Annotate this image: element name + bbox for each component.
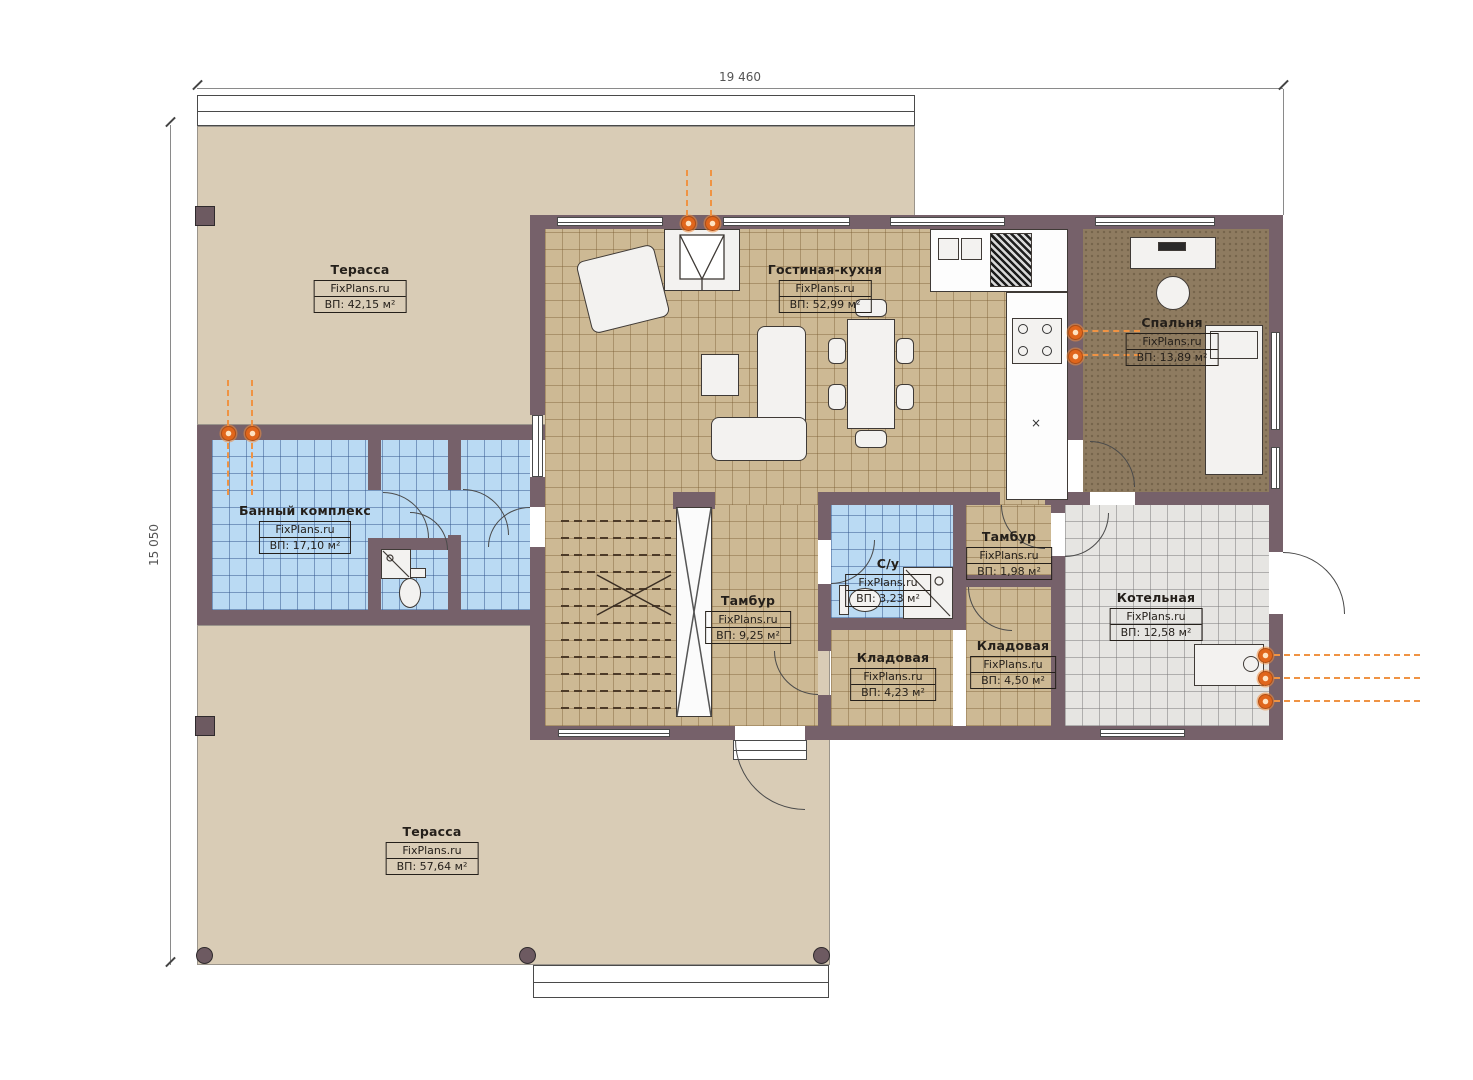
room-info-box: FixPlans.ru ВП: 9,25 м² bbox=[705, 611, 791, 644]
area-row: ВП: 12,58 м² bbox=[1111, 624, 1202, 640]
wall-lamp bbox=[221, 426, 236, 441]
shower-detail bbox=[381, 549, 411, 579]
wall bbox=[1135, 492, 1283, 505]
coffee-table bbox=[701, 354, 739, 396]
lamp-leader bbox=[1274, 700, 1420, 702]
room-name: Тамбур bbox=[705, 593, 791, 608]
room-label-vestibule-main: Тамбур FixPlans.ru ВП: 9,25 м² bbox=[705, 593, 791, 644]
chair bbox=[828, 384, 846, 410]
round-column bbox=[196, 947, 213, 964]
boiler-dial bbox=[1243, 656, 1259, 672]
wall bbox=[818, 695, 831, 740]
fireplace-detail bbox=[664, 229, 740, 291]
room-info-box: FixPlans.ru ВП: 57,64 м² bbox=[386, 842, 479, 875]
round-column bbox=[519, 947, 536, 964]
toilet bbox=[399, 578, 421, 608]
brand-row: FixPlans.ru bbox=[1127, 334, 1218, 349]
chair bbox=[828, 338, 846, 364]
terrace-steps-top bbox=[197, 95, 915, 126]
brand-row: FixPlans.ru bbox=[706, 612, 790, 627]
area-row: ВП: 1,98 м² bbox=[967, 563, 1051, 579]
wall bbox=[530, 477, 545, 507]
chair bbox=[896, 338, 914, 364]
area-row: ВП: 52,99 м² bbox=[780, 296, 871, 312]
room-name: Терасса bbox=[314, 262, 407, 277]
area-row: ВП: 4,23 м² bbox=[851, 684, 935, 700]
room-info-box: FixPlans.ru ВП: 3,23 м² bbox=[845, 574, 931, 607]
room-label-bath: Банный комплекс FixPlans.ru ВП: 17,10 м² bbox=[239, 503, 371, 554]
stove-burner bbox=[1018, 346, 1028, 356]
dining-table bbox=[847, 319, 895, 429]
room-label-terrace-top: Терасса FixPlans.ru ВП: 42,15 м² bbox=[314, 262, 407, 313]
room-label-terrace-bottom: Терасса FixPlans.ru ВП: 57,64 м² bbox=[386, 824, 479, 875]
door-opening bbox=[735, 726, 805, 740]
lamp-leader bbox=[227, 443, 229, 495]
window bbox=[557, 217, 663, 226]
stove-burner bbox=[1042, 346, 1052, 356]
kitchen-sink bbox=[961, 238, 982, 260]
brand-row: FixPlans.ru bbox=[971, 657, 1055, 672]
wall bbox=[197, 425, 212, 625]
wall bbox=[818, 584, 831, 651]
dimension-line-left bbox=[170, 125, 171, 965]
chair bbox=[896, 384, 914, 410]
room-name: С/у bbox=[845, 556, 931, 571]
sofa-seat bbox=[711, 417, 807, 461]
window bbox=[1100, 729, 1185, 737]
room-name: Банный комплекс bbox=[239, 503, 371, 518]
room-name: Гостиная-кухня bbox=[768, 262, 882, 277]
lamp-leader bbox=[686, 170, 688, 216]
brand-row: FixPlans.ru bbox=[315, 281, 406, 296]
room-info-box: FixPlans.ru ВП: 42,15 м² bbox=[314, 280, 407, 313]
stove-burner bbox=[1042, 324, 1052, 334]
window bbox=[1095, 217, 1215, 226]
stove-burner bbox=[1018, 324, 1028, 334]
wall bbox=[368, 440, 381, 490]
area-row: ВП: 42,15 м² bbox=[315, 296, 406, 312]
window bbox=[558, 729, 670, 737]
wall bbox=[818, 492, 1000, 505]
brand-row: FixPlans.ru bbox=[1111, 609, 1202, 624]
terrace-steps-bottom bbox=[533, 965, 829, 998]
room-info-box: FixPlans.ru ВП: 4,50 м² bbox=[970, 656, 1056, 689]
room-label-boiler: Котельная FixPlans.ru ВП: 12,58 м² bbox=[1110, 590, 1203, 641]
square-column bbox=[195, 716, 215, 736]
room-info-box: FixPlans.ru ВП: 17,10 м² bbox=[259, 521, 352, 554]
door-opening bbox=[1269, 552, 1283, 614]
room-name: Терасса bbox=[386, 824, 479, 839]
window bbox=[723, 217, 850, 226]
lamp-leader bbox=[710, 170, 712, 216]
room-info-box: FixPlans.ru ВП: 4,23 м² bbox=[850, 668, 936, 701]
area-row: ВП: 13,89 м² bbox=[1127, 349, 1218, 365]
area-row: ВП: 4,50 м² bbox=[971, 672, 1055, 688]
wall bbox=[831, 618, 966, 630]
window bbox=[532, 415, 543, 477]
room-label-storage-a: Кладовая FixPlans.ru ВП: 4,23 м² bbox=[850, 650, 936, 701]
wall bbox=[448, 440, 461, 490]
room-name: Кладовая bbox=[970, 638, 1056, 653]
brand-row: FixPlans.ru bbox=[260, 522, 351, 537]
chair bbox=[855, 430, 887, 448]
stairs bbox=[557, 505, 675, 715]
brand-row: FixPlans.ru bbox=[851, 669, 935, 684]
square-column bbox=[195, 206, 215, 226]
room-name: Котельная bbox=[1110, 590, 1203, 605]
wall bbox=[818, 505, 831, 540]
room-info-box: FixPlans.ru ВП: 52,99 м² bbox=[779, 280, 872, 313]
area-row: ВП: 17,10 м² bbox=[260, 537, 351, 553]
lamp-leader bbox=[251, 380, 253, 426]
vent-mark: × bbox=[1031, 416, 1041, 430]
wall bbox=[953, 505, 966, 625]
lamp-leader bbox=[227, 380, 229, 426]
brand-row: FixPlans.ru bbox=[387, 843, 478, 858]
wall-lamp bbox=[1258, 648, 1273, 663]
room-info-box: FixPlans.ru ВП: 13,89 м² bbox=[1126, 333, 1219, 366]
wall-lamp bbox=[1258, 671, 1273, 686]
wall-lamp bbox=[245, 426, 260, 441]
window bbox=[1271, 447, 1280, 489]
area-row: ВП: 57,64 м² bbox=[387, 858, 478, 874]
room-name: Тамбур bbox=[966, 529, 1052, 544]
room-label-living: Гостиная-кухня FixPlans.ru ВП: 52,99 м² bbox=[768, 262, 882, 313]
lamp-leader bbox=[1274, 677, 1420, 679]
area-row: ВП: 3,23 м² bbox=[846, 590, 930, 606]
dimension-label-top: 19 460 bbox=[705, 70, 775, 84]
lamp-leader bbox=[251, 443, 253, 495]
floor-plan: 19 460 15 050 bbox=[0, 0, 1473, 1080]
room-label-wc: С/у FixPlans.ru ВП: 3,23 м² bbox=[845, 556, 931, 607]
desk-chair bbox=[1156, 276, 1190, 310]
dimension-line-top bbox=[197, 88, 1283, 89]
wall bbox=[530, 215, 545, 415]
wall bbox=[197, 610, 545, 625]
door-arc bbox=[1283, 552, 1345, 614]
fridge bbox=[990, 233, 1032, 287]
brand-row: FixPlans.ru bbox=[780, 281, 871, 296]
area-row: ВП: 9,25 м² bbox=[706, 627, 790, 643]
brand-row: FixPlans.ru bbox=[967, 548, 1051, 563]
dimension-extension-line bbox=[1283, 89, 1284, 215]
room-name: Кладовая bbox=[850, 650, 936, 665]
kitchen-sink bbox=[938, 238, 959, 260]
dimension-label-left: 15 050 bbox=[147, 513, 161, 577]
wall bbox=[530, 547, 545, 740]
wall-lamp bbox=[705, 216, 720, 231]
window bbox=[1271, 332, 1280, 430]
monitor bbox=[1158, 242, 1186, 251]
wall-lamp bbox=[1068, 325, 1083, 340]
window bbox=[890, 217, 1005, 226]
room-name: Спальня bbox=[1126, 315, 1219, 330]
room-label-bedroom: Спальня FixPlans.ru ВП: 13,89 м² bbox=[1126, 315, 1219, 366]
room-label-storage-b: Кладовая FixPlans.ru ВП: 4,50 м² bbox=[970, 638, 1056, 689]
round-column bbox=[813, 947, 830, 964]
lamp-leader bbox=[1274, 654, 1420, 656]
wall bbox=[1051, 505, 1065, 513]
brand-row: FixPlans.ru bbox=[846, 575, 930, 590]
room-info-box: FixPlans.ru ВП: 1,98 м² bbox=[966, 547, 1052, 580]
wall-lamp bbox=[681, 216, 696, 231]
room-info-box: FixPlans.ru ВП: 12,58 м² bbox=[1110, 608, 1203, 641]
wall-lamp bbox=[1068, 349, 1083, 364]
wall-lamp bbox=[1258, 694, 1273, 709]
room-label-vestibule-small: Тамбур FixPlans.ru ВП: 1,98 м² bbox=[966, 529, 1052, 580]
